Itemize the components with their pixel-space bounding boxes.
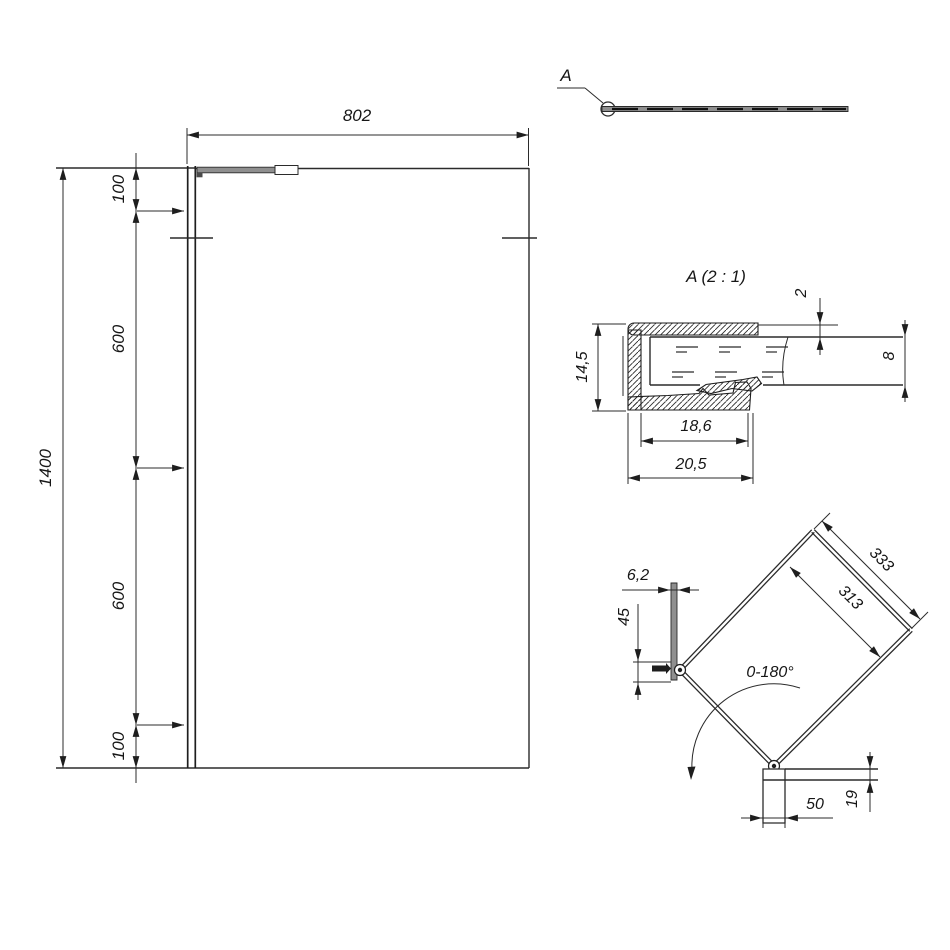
technical-drawing-page: 802 1400 100 600 600 100 A <box>0 0 950 950</box>
swing-view: 6,2 45 <box>616 513 928 828</box>
dim-label-600-upper: 600 <box>109 324 128 353</box>
dim-label-angle: 0-180° <box>746 664 794 681</box>
dim-label-19: 19 <box>844 790 861 808</box>
dim-label-333: 333 <box>866 544 897 575</box>
dim-label-100-top: 100 <box>109 174 128 203</box>
dim-label-18-6: 18,6 <box>680 418 711 435</box>
dimension-6-2: 6,2 <box>622 567 699 590</box>
dim-label-50: 50 <box>806 796 824 813</box>
glass-material-marks <box>672 347 788 377</box>
dimension-45: 45 <box>616 604 671 700</box>
detail-view: A (2 : 1) <box>574 267 905 484</box>
dim-label-8: 8 <box>881 351 898 360</box>
detail-title: A (2 : 1) <box>685 267 746 286</box>
wall-pivot <box>675 665 686 676</box>
dimension-18-6: 18,6 <box>641 413 748 447</box>
support-bar-front <box>197 167 275 173</box>
technical-drawing-canvas: 802 1400 100 600 600 100 A <box>0 0 950 950</box>
dimension-313: 313 <box>790 567 880 657</box>
support-bar-clamp-front <box>275 166 298 175</box>
dimension-2: 2 <box>758 288 838 355</box>
dimension-333: 333 <box>814 513 928 628</box>
dimension-50: 50 <box>741 796 833 828</box>
dim-label-600-lower: 600 <box>109 581 128 610</box>
profile-grip-tongue <box>697 377 762 394</box>
dimension-802: 802 <box>187 106 529 166</box>
dim-label-6-2: 6,2 <box>627 567 649 584</box>
fixing-arrow <box>652 663 671 674</box>
dim-label-20-5: 20,5 <box>674 456 706 473</box>
glass-section <box>650 337 903 385</box>
glass-panel-outline <box>56 168 529 768</box>
dim-label-45: 45 <box>616 608 633 626</box>
profile-bracket-notch <box>197 173 203 178</box>
dimension-8: 8 <box>881 320 905 402</box>
plan-view: A <box>557 66 848 116</box>
dim-label-14-5: 14,5 <box>574 351 591 382</box>
dim-label-1400: 1400 <box>36 449 55 487</box>
dim-label-802: 802 <box>343 106 372 125</box>
dimension-chain: 100 600 600 100 <box>109 153 184 783</box>
profile-top-flange <box>628 323 758 335</box>
detail-callout-label: A <box>559 66 571 85</box>
dim-label-2: 2 <box>793 288 810 298</box>
front-view: 802 1400 100 600 600 100 <box>36 106 537 783</box>
dim-label-100-bottom: 100 <box>109 731 128 760</box>
dimension-19: 19 <box>844 752 870 812</box>
dimension-14-5: 14,5 <box>574 324 626 411</box>
dim-label-313: 313 <box>835 582 866 613</box>
swing-arc: 0-180° <box>688 664 801 780</box>
wall-profile-front <box>188 166 196 768</box>
